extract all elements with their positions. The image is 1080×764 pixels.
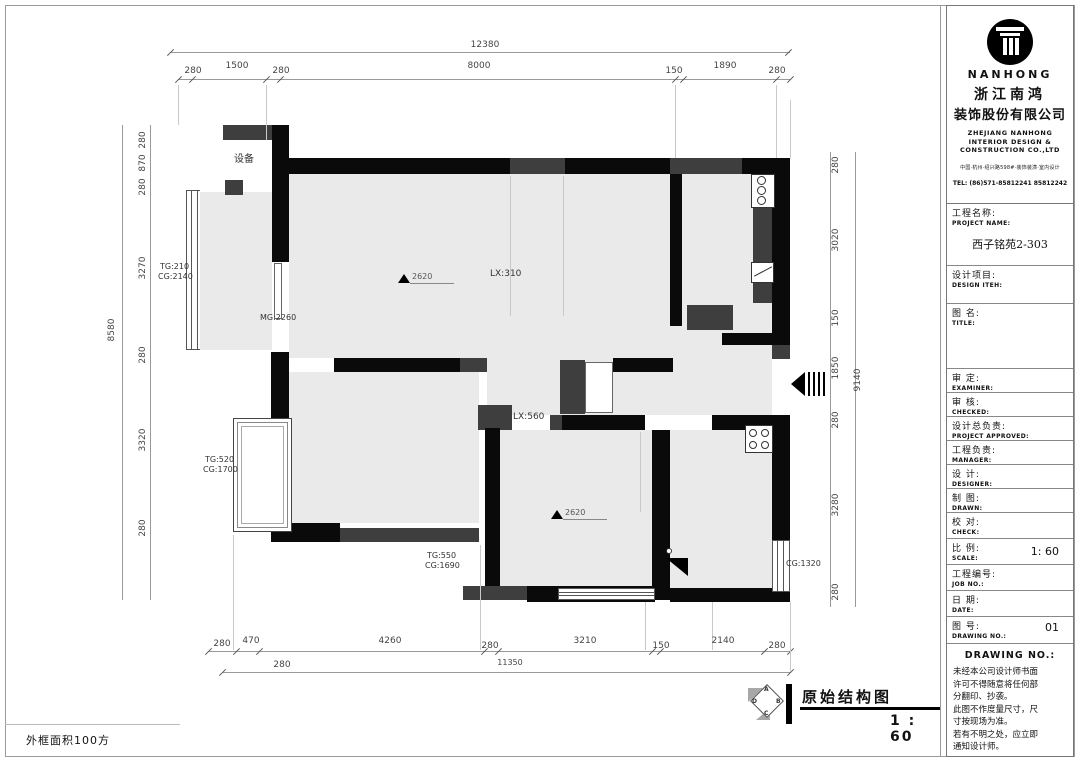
balcony-window bbox=[197, 190, 198, 350]
balcony-window bbox=[186, 349, 200, 350]
dim-value: 11350 bbox=[488, 658, 532, 668]
tg-label: TG:550 bbox=[427, 551, 456, 561]
wall bbox=[670, 158, 742, 174]
dim-value: 3280 bbox=[831, 483, 841, 527]
footer-heading: DRAWING NO.: bbox=[953, 650, 1067, 661]
drawing-title: 原始结构图 bbox=[802, 686, 892, 707]
field-manager: 工程负责: MANAGER: bbox=[947, 441, 1073, 465]
tg-label: TG:210 bbox=[160, 262, 189, 272]
burner-icon bbox=[749, 441, 757, 449]
company-header: NANHONG 浙江南鸿 装饰股份有限公司 ZHEJIANG NANHONG I… bbox=[947, 19, 1073, 204]
frame-area-label: 外框面积100方 bbox=[26, 732, 110, 748]
drawing-title-block: A B C D 原始结构图 1 : 60 bbox=[744, 680, 944, 730]
door-swing-icon bbox=[666, 558, 688, 576]
copyright-notice: 未经本公司设计师书面 许可不得随意将任何部 分翻印、抄袭。 此图不作度量尺寸，尺… bbox=[953, 666, 1067, 754]
dim-value: 150 bbox=[639, 641, 683, 651]
field-label: 日 期: bbox=[952, 593, 1069, 606]
field-label-en: CHECK: bbox=[952, 529, 1069, 536]
field-date: 日 期: DATE: bbox=[947, 591, 1073, 617]
dim-value: 280 bbox=[755, 641, 799, 651]
wall bbox=[334, 358, 460, 372]
field-drawn: 制 图: DRAWN: bbox=[947, 489, 1073, 513]
dim-line bbox=[150, 125, 151, 600]
field-label-en: MANAGER: bbox=[952, 457, 1069, 464]
field-label: 制 图: bbox=[952, 491, 1069, 504]
burner-icon bbox=[761, 429, 769, 437]
field-label: 设计项目: bbox=[952, 268, 1069, 281]
dim-tick bbox=[787, 76, 794, 83]
wall bbox=[271, 352, 289, 418]
orientation-marker: A B C D bbox=[748, 682, 794, 726]
wall bbox=[562, 415, 645, 430]
field-label: 工程编号: bbox=[952, 567, 1069, 580]
dim-value: 3270 bbox=[138, 246, 148, 290]
dim-value: 3020 bbox=[831, 218, 841, 262]
lx-label: LX:310 bbox=[490, 270, 521, 280]
field-job-no: 工程编号: JOB NO.: bbox=[947, 565, 1073, 591]
wall bbox=[223, 125, 277, 140]
ref-line bbox=[510, 176, 511, 316]
drawing-no-value: 01 bbox=[1045, 621, 1059, 634]
window-line bbox=[559, 592, 654, 593]
field-label: 审 定: bbox=[952, 371, 1069, 384]
field-examiner: 审 定: EXAMINER: bbox=[947, 369, 1073, 393]
marker-letter: B bbox=[776, 698, 781, 705]
field-label: 设 计: bbox=[952, 467, 1069, 480]
project-name-value: 西子铭苑2-303 bbox=[947, 236, 1073, 252]
marker-letter: C bbox=[764, 710, 768, 717]
burner-icon bbox=[761, 441, 769, 449]
field-designer: 设 计: DESIGNER: bbox=[947, 465, 1073, 489]
company-tel: TEL: (86)571-85812241 85812242 bbox=[947, 180, 1073, 187]
dim-tick bbox=[785, 49, 792, 56]
company-sub3: CONSTRUCTION CO.,LTD bbox=[947, 146, 1073, 155]
dim-value: 1890 bbox=[703, 61, 747, 71]
dim-value: 150 bbox=[831, 296, 841, 340]
wall bbox=[225, 180, 243, 195]
level-line bbox=[563, 519, 607, 520]
tg-label: TG:520 bbox=[205, 455, 234, 465]
field-label-en: CHECKED: bbox=[952, 409, 1069, 416]
field-label-en: DRAWING NO.: bbox=[952, 633, 1069, 640]
wall bbox=[742, 158, 790, 174]
wall bbox=[463, 586, 527, 600]
frame-line bbox=[940, 5, 941, 757]
witness-line bbox=[266, 85, 267, 140]
floor-plan: 2620 2620 设备 TG:210 CG:2140 MG:2260 LX:3… bbox=[0, 0, 940, 764]
entry-arrow-hatch bbox=[808, 372, 810, 396]
cg-label: CG:1700 bbox=[203, 465, 238, 475]
pipe-icon bbox=[757, 196, 766, 205]
wall bbox=[687, 305, 733, 330]
witness-line bbox=[776, 85, 777, 158]
field-label: 工程名称: bbox=[952, 206, 1069, 219]
dim-line bbox=[178, 79, 790, 80]
wall bbox=[753, 283, 773, 303]
mg-label: MG:2260 bbox=[260, 313, 296, 323]
dim-value: 9140 bbox=[853, 358, 863, 402]
dim-value: 280 bbox=[259, 66, 303, 76]
wall bbox=[289, 523, 340, 542]
door-leaf bbox=[274, 263, 282, 319]
dim-value: 280 bbox=[468, 641, 512, 651]
wall bbox=[670, 174, 682, 326]
field-label-en: DRAWN: bbox=[952, 505, 1069, 512]
pipe-icon bbox=[757, 176, 766, 185]
wall bbox=[613, 358, 673, 372]
dim-value: 280 bbox=[260, 660, 304, 670]
field-title: 图 名: TITLE: bbox=[947, 304, 1073, 369]
entry-arrow-hatch bbox=[813, 372, 815, 396]
field-label: 设计总负责: bbox=[952, 419, 1069, 432]
dim-value: 1850 bbox=[831, 346, 841, 390]
frame-line bbox=[5, 724, 180, 725]
field-label-en: DESIGN ITEH: bbox=[952, 282, 1069, 289]
dim-value: 280 bbox=[138, 506, 148, 550]
wall bbox=[722, 333, 790, 345]
door-leaf bbox=[585, 362, 613, 413]
field-label-en: PROJECT NAME: bbox=[952, 220, 1069, 227]
dim-value: 150 bbox=[652, 66, 696, 76]
wall bbox=[565, 158, 670, 174]
witness-line bbox=[480, 545, 481, 650]
level-marker-icon bbox=[551, 510, 563, 519]
field-label-en: DESIGNER: bbox=[952, 481, 1069, 488]
level-value: 2620 bbox=[412, 272, 432, 282]
field-scale: 比 例: SCALE: 1: 60 bbox=[947, 539, 1073, 565]
entry-arrow-icon bbox=[791, 372, 805, 396]
scale-value: 1: 60 bbox=[1031, 545, 1059, 558]
living-room-floor bbox=[289, 174, 772, 358]
witness-line bbox=[790, 602, 791, 672]
field-checked: 审 核: CHECKED: bbox=[947, 393, 1073, 417]
window-line bbox=[783, 541, 784, 591]
wall bbox=[485, 428, 500, 586]
field-design-item: 设计项目: DESIGN ITEH: bbox=[947, 266, 1073, 304]
dim-line bbox=[170, 52, 790, 53]
dim-value: 280 bbox=[171, 66, 215, 76]
dim-value: 280 bbox=[831, 570, 841, 614]
field-project-approved: 设计总负责: PROJECT APPROVED: bbox=[947, 417, 1073, 441]
field-project-name: 工程名称: PROJECT NAME: 西子铭苑2-303 bbox=[947, 204, 1073, 266]
ref-line bbox=[563, 176, 564, 316]
field-check: 校 对: CHECK: bbox=[947, 513, 1073, 539]
dim-value: 280 bbox=[755, 66, 799, 76]
dim-value: 470 bbox=[229, 636, 273, 646]
cg-label: CG:1690 bbox=[425, 561, 460, 571]
drawing-sheet: 2620 2620 设备 TG:210 CG:2140 MG:2260 LX:3… bbox=[0, 0, 1080, 764]
field-label-en: PROJECT APPROVED: bbox=[952, 433, 1069, 440]
witness-line bbox=[233, 535, 234, 650]
title-block: NANHONG 浙江南鸿 装饰股份有限公司 ZHEJIANG NANHONG I… bbox=[946, 5, 1074, 757]
cg-label: CG:2140 bbox=[158, 272, 193, 282]
dim-line bbox=[222, 672, 790, 673]
witness-line bbox=[178, 85, 179, 125]
dim-value: 1500 bbox=[215, 61, 259, 71]
wall bbox=[510, 158, 565, 174]
field-label: 审 核: bbox=[952, 395, 1069, 408]
wall bbox=[772, 344, 790, 359]
dim-value: 280 bbox=[138, 165, 148, 209]
window-line bbox=[777, 541, 778, 591]
balcony-window bbox=[186, 190, 200, 191]
cg-label: CG:1320 bbox=[786, 559, 821, 569]
window-line bbox=[559, 595, 654, 596]
flue-box bbox=[751, 262, 774, 283]
field-label-en: JOB NO.: bbox=[952, 581, 1069, 588]
drawing-scale: 1 : 60 bbox=[890, 713, 944, 745]
marker-bar bbox=[786, 684, 792, 724]
company-name-zh: 浙江南鸿 bbox=[947, 84, 1073, 104]
balcony-window bbox=[191, 190, 192, 350]
company-address: 中国·杭州·绍兴路598#·装饰装潢·室内设计 bbox=[947, 164, 1073, 171]
witness-line bbox=[675, 85, 676, 158]
field-label-en: EXAMINER: bbox=[952, 385, 1069, 392]
dim-value: 2140 bbox=[701, 636, 745, 646]
wall bbox=[460, 358, 487, 372]
entry-arrow-hatch bbox=[818, 372, 820, 396]
dim-line bbox=[122, 125, 123, 600]
company-name-zh2: 装饰股份有限公司 bbox=[947, 104, 1073, 123]
field-label-en: DATE: bbox=[952, 607, 1069, 614]
window-sill bbox=[340, 528, 479, 542]
dim-value: 8580 bbox=[107, 308, 117, 352]
company-logo-icon bbox=[987, 19, 1033, 65]
dim-value: 3210 bbox=[563, 636, 607, 646]
dim-value: 3320 bbox=[138, 418, 148, 462]
ref-line bbox=[640, 432, 641, 512]
field-drawing-no: 图 号: DRAWING NO.: 01 bbox=[947, 617, 1073, 644]
balcony-floor bbox=[200, 192, 272, 350]
wall bbox=[753, 208, 773, 263]
equipment-label: 设备 bbox=[234, 155, 254, 165]
company-sub1: ZHEJIANG NANHONG bbox=[947, 129, 1073, 138]
wall bbox=[272, 125, 289, 262]
wall bbox=[289, 158, 510, 174]
dim-value: 280 bbox=[831, 143, 841, 187]
field-label: 图 名: bbox=[952, 306, 1069, 319]
field-label-en: TITLE: bbox=[952, 320, 1069, 327]
witness-line bbox=[790, 100, 791, 158]
burner-icon bbox=[749, 429, 757, 437]
bedroom-floor bbox=[289, 372, 479, 523]
dim-value: 12380 bbox=[463, 40, 507, 50]
field-label: 校 对: bbox=[952, 515, 1069, 528]
level-value: 2620 bbox=[565, 508, 585, 518]
dim-value: 280 bbox=[831, 398, 841, 442]
wall bbox=[772, 415, 790, 540]
dim-value: 4260 bbox=[368, 636, 412, 646]
marker-letter: A bbox=[764, 686, 769, 693]
pipe-icon bbox=[757, 186, 766, 195]
level-marker-icon bbox=[398, 274, 410, 283]
field-label: 工程负责: bbox=[952, 443, 1069, 456]
title-block-footer: DRAWING NO.: 未经本公司设计师书面 许可不得随意将任何部 分翻印、抄… bbox=[947, 644, 1073, 754]
dim-value: 280 bbox=[138, 333, 148, 377]
bay-window-inner bbox=[241, 426, 284, 524]
dim-value: 8000 bbox=[457, 61, 501, 71]
entry-arrow-hatch bbox=[823, 372, 825, 396]
wall bbox=[550, 415, 562, 430]
wall bbox=[560, 360, 585, 414]
window bbox=[558, 588, 655, 600]
lx-label: LX:560 bbox=[513, 413, 544, 423]
title-underline bbox=[800, 707, 940, 710]
company-sub2: INTERIOR DESIGN & bbox=[947, 138, 1073, 147]
level-line bbox=[410, 283, 454, 284]
marker-letter: D bbox=[752, 698, 757, 705]
wall bbox=[478, 405, 512, 430]
marker-icon bbox=[666, 548, 672, 554]
company-name-en: NANHONG bbox=[947, 68, 1073, 81]
